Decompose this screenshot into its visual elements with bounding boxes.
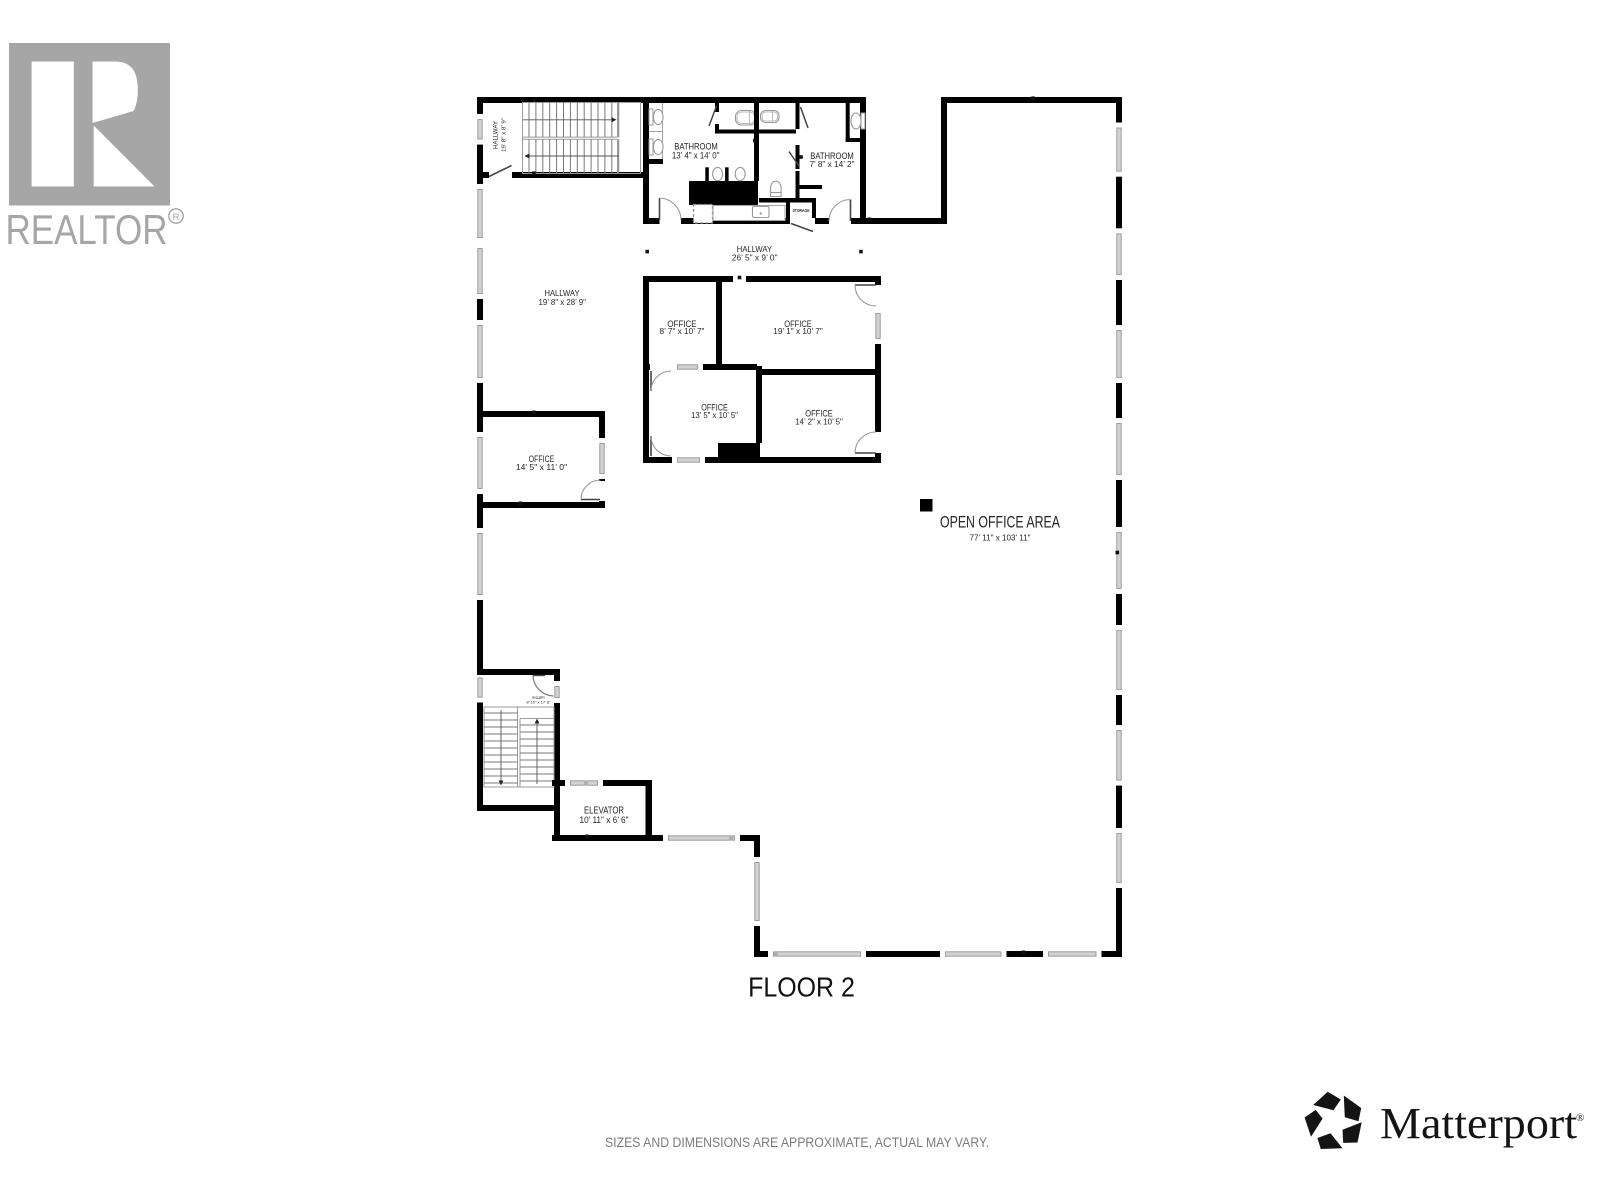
svg-text:13’ 5" x 10’ 5": 13’ 5" x 10’ 5" bbox=[691, 411, 738, 420]
svg-text:Matterport: Matterport bbox=[1380, 1099, 1577, 1148]
svg-text:HALLWAY: HALLWAY bbox=[532, 695, 545, 700]
svg-text:SIZES AND DIMENSIONS ARE APPRO: SIZES AND DIMENSIONS ARE APPROXIMATE, AC… bbox=[605, 1135, 989, 1150]
svg-text:7’ 8" x 14’ 2": 7’ 8" x 14’ 2" bbox=[809, 159, 854, 169]
svg-text:8’ 7" x 10’ 7": 8’ 7" x 10’ 7" bbox=[660, 327, 705, 336]
svg-text:14’ 5" x 11’ 0": 14’ 5" x 11’ 0" bbox=[516, 463, 567, 472]
svg-text:10’ 11" x 6’ 6": 10’ 11" x 6’ 6" bbox=[580, 815, 629, 825]
svg-text:R: R bbox=[173, 212, 180, 223]
svg-text:14’ 2" x 10’ 5": 14’ 2" x 10’ 5" bbox=[795, 417, 843, 426]
svg-text:8’ 10" x 17’ 8": 8’ 10" x 17’ 8" bbox=[527, 701, 552, 705]
svg-text:13’ 4" x 14’ 0": 13’ 4" x 14’ 0" bbox=[672, 150, 720, 160]
svg-text:®: ® bbox=[1576, 1112, 1584, 1124]
svg-text:19’ 8" x 8’ 9": 19’ 8" x 8’ 9" bbox=[502, 118, 508, 152]
svg-text:OPEN OFFICE AREA: OPEN OFFICE AREA bbox=[940, 514, 1060, 532]
svg-text:HALLWAY: HALLWAY bbox=[544, 289, 580, 298]
svg-text:19’ 8" x 28’ 9": 19’ 8" x 28’ 9" bbox=[538, 298, 586, 307]
svg-text:26’ 5" x 9’ 0": 26’ 5" x 9’ 0" bbox=[732, 253, 778, 262]
svg-text:77’ 11" x 103’ 11": 77’ 11" x 103’ 11" bbox=[970, 533, 1031, 543]
svg-text:FLOOR 2: FLOOR 2 bbox=[748, 972, 855, 1003]
svg-text:19’ 1" x 10’ 7": 19’ 1" x 10’ 7" bbox=[773, 327, 823, 336]
svg-text:REALTOR: REALTOR bbox=[6, 206, 168, 253]
svg-text:HALLWAY: HALLWAY bbox=[493, 121, 500, 149]
svg-text:STORAGE: STORAGE bbox=[793, 208, 810, 213]
